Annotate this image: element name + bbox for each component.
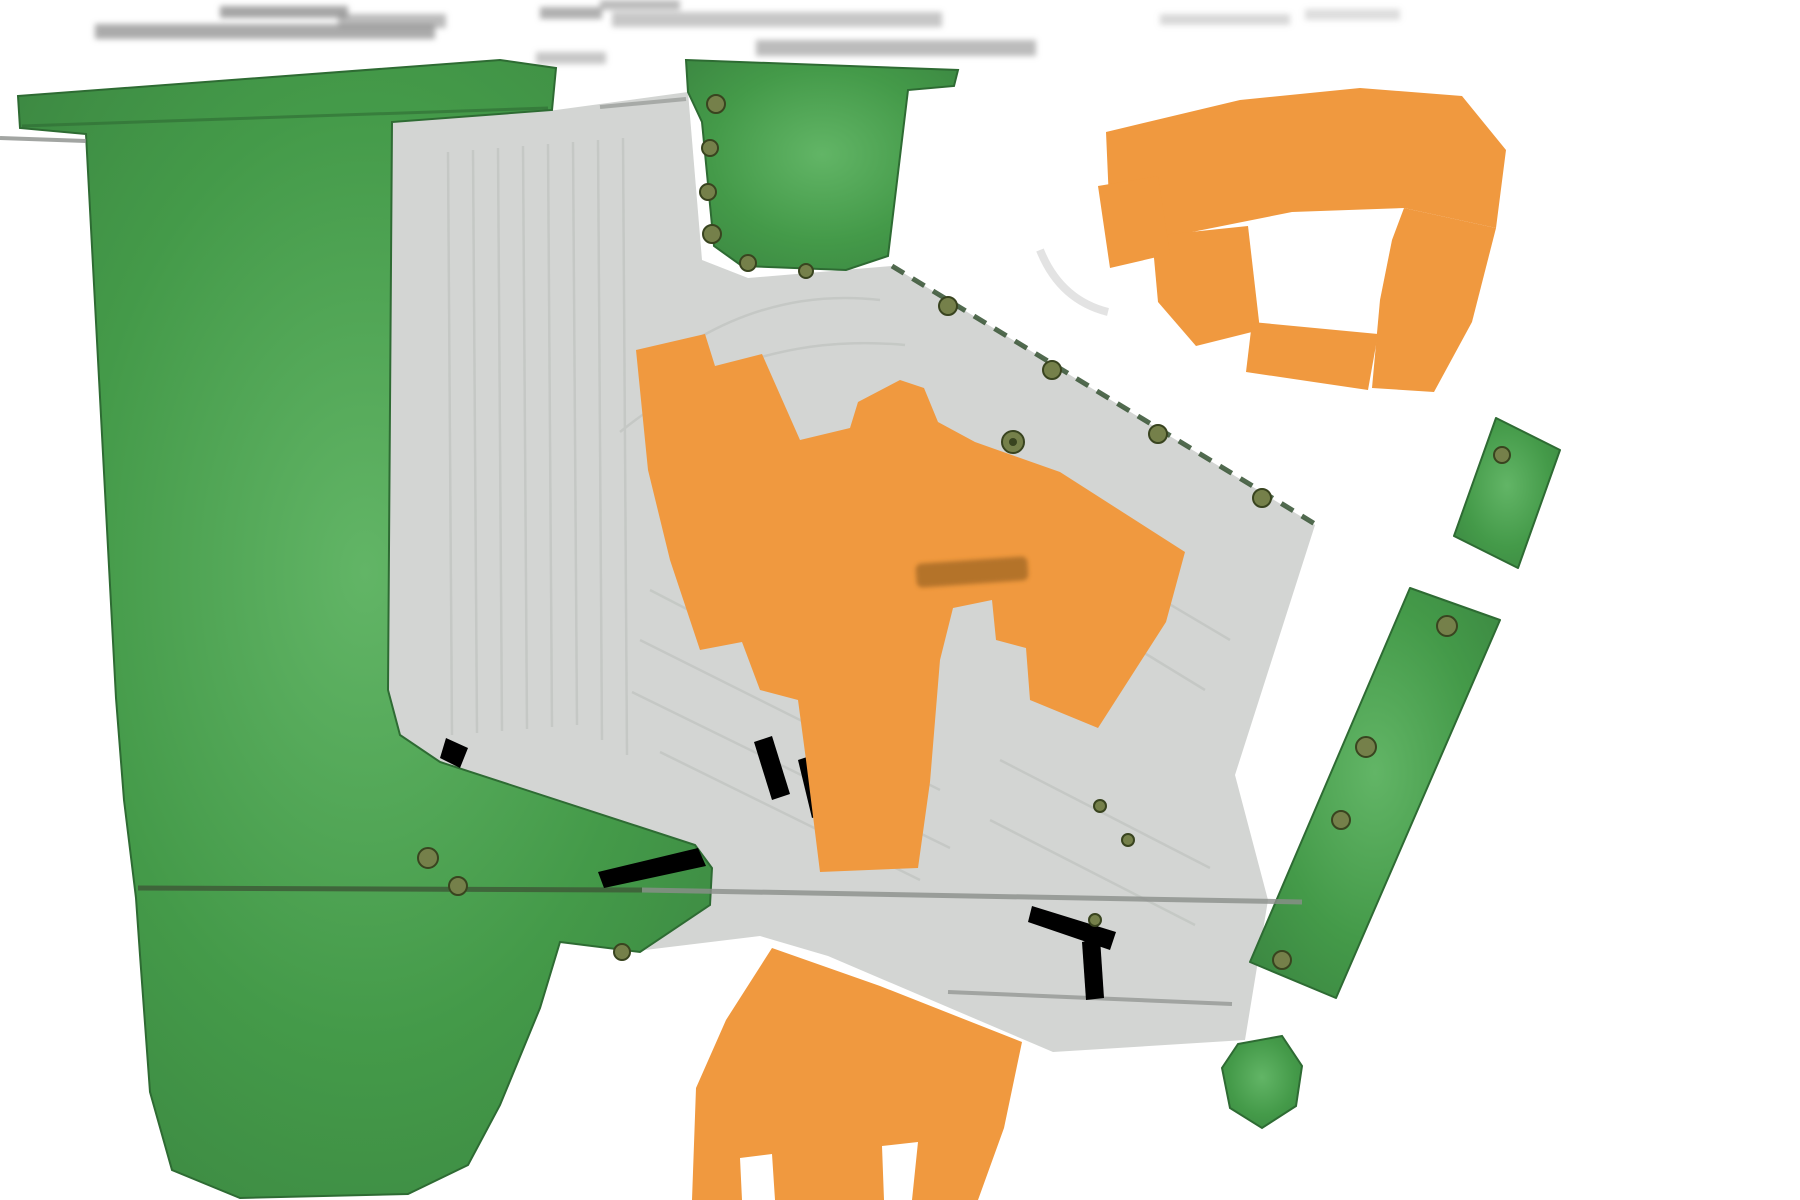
tree-icon: [418, 848, 438, 868]
title-text-blur: [220, 6, 348, 18]
strip-tree-icon: [1356, 737, 1376, 757]
boundary-tree-icon: [939, 297, 957, 315]
boundary-tree-icon: [1043, 361, 1061, 379]
north-lawn-patch: [686, 60, 958, 270]
title-text-blur: [600, 0, 680, 10]
strip-tree-icon: [1332, 811, 1350, 829]
tree-icon: [700, 184, 716, 200]
title-text-blur: [338, 14, 446, 28]
northeast-building-bridge: [1246, 322, 1378, 390]
tree-icon: [614, 944, 630, 960]
northeast-building-head: [1106, 88, 1506, 238]
curb-line-west: [0, 138, 86, 141]
northeast-building-footprint: [1098, 88, 1506, 392]
strip-tree-icon: [1273, 951, 1291, 969]
northeast-building-annex: [1098, 176, 1170, 268]
northeast-building-arm: [1372, 208, 1496, 392]
east-green-strip-upper: [1454, 418, 1560, 568]
tree-center-dot: [1009, 438, 1017, 446]
title-text-blur: [536, 52, 606, 64]
boundary-tree-icon: [1149, 425, 1167, 443]
tree-icon: [799, 264, 813, 278]
building-pad-outline: [1040, 250, 1108, 312]
tree-icon: [707, 95, 725, 113]
east-green-strip-long: [1250, 588, 1500, 998]
tree-icon: [702, 140, 718, 156]
tree-icon: [449, 877, 467, 895]
tree-icon: [740, 255, 756, 271]
boundary-tree-icon: [1253, 489, 1271, 507]
title-text-blur: [612, 12, 942, 27]
strip-tree-icon: [1437, 616, 1457, 636]
site-plan-canvas: [0, 0, 1800, 1200]
shrub-icon: [1122, 834, 1134, 846]
shrub-icon: [1094, 800, 1106, 812]
strip-tree-icon: [1494, 447, 1510, 463]
title-text-blur: [1305, 9, 1400, 20]
tree-icon: [703, 225, 721, 243]
title-text-blur: [756, 40, 1036, 56]
title-text-blur: [1160, 14, 1290, 25]
title-text-blur: [540, 7, 602, 19]
road-line-on-grass: [138, 888, 642, 890]
southeast-green-blob: [1222, 1036, 1302, 1128]
title-block-blurred-text: [95, 0, 1400, 64]
site-plan-svg: [0, 0, 1800, 1200]
shrub-icon: [1089, 914, 1101, 926]
